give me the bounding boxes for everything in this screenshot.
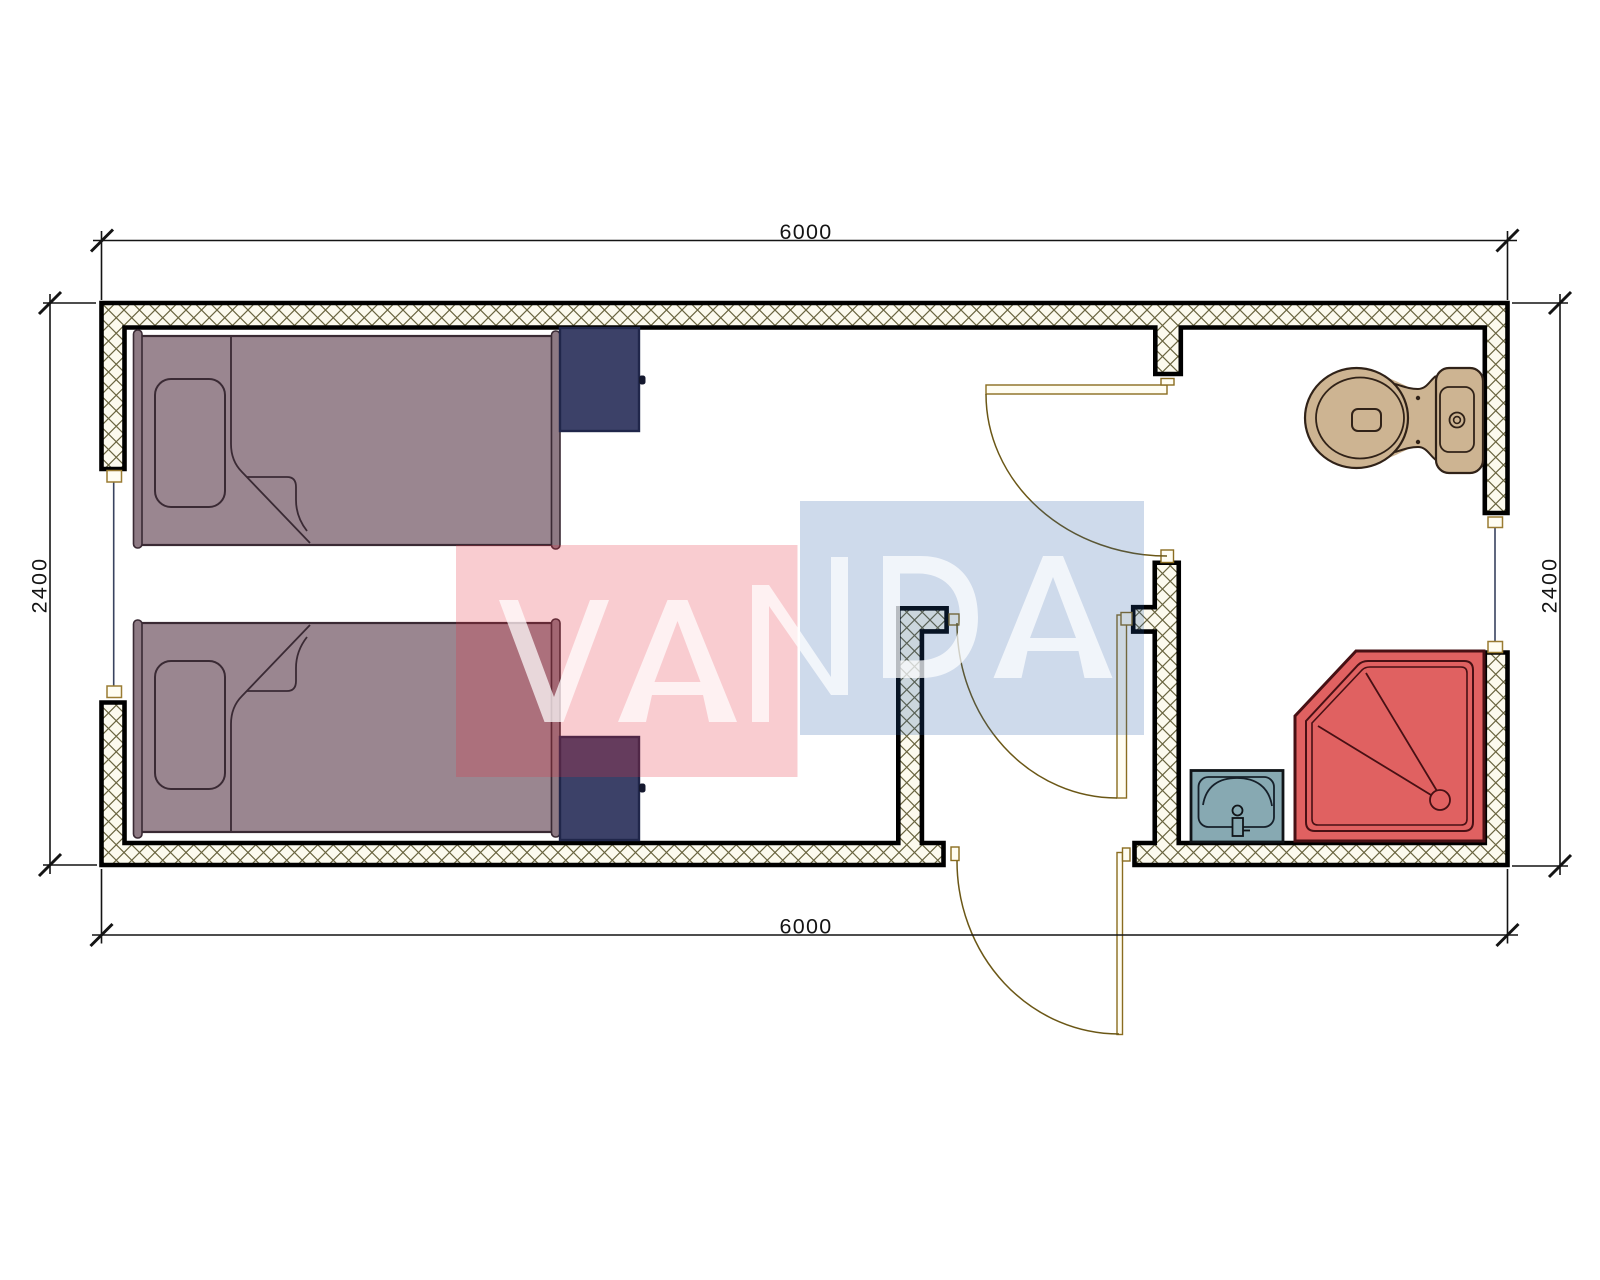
svg-text:2400: 2400 [1538,557,1562,614]
svg-text:2400: 2400 [28,557,52,614]
svg-text:6000: 6000 [779,220,832,244]
svg-text:6000: 6000 [779,915,832,939]
